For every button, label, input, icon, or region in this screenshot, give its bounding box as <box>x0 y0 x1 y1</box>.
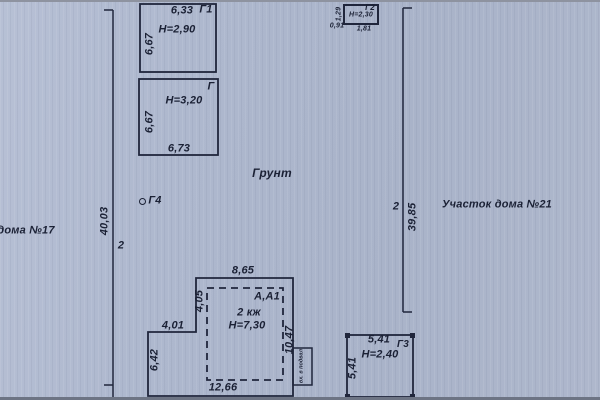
g-height-label: Н=3,20 <box>166 96 203 107</box>
g2-bottom-dimension: 1,81 <box>357 26 371 33</box>
g-bottom-dimension: 6,73 <box>168 144 190 155</box>
g2-bottom-left-dimension: 0,91 <box>330 23 344 30</box>
left-neighbor-plot-label: дома №17 <box>0 226 55 237</box>
g4-point-marker-icon <box>139 198 146 205</box>
g2-height-label: Н=2,30 <box>349 12 373 19</box>
right-boundary-ticks <box>403 8 412 312</box>
g3-height-label: Н=2,40 <box>362 350 399 361</box>
main-top-dimension: 8,65 <box>232 266 254 277</box>
g3-top-dimension: 5,41 <box>368 335 390 346</box>
g1-building-label: Г1 <box>199 5 212 16</box>
main-bottom-dimension: 12,66 <box>209 383 238 394</box>
main-floors-label: 2 кж <box>237 308 261 319</box>
main-building-label: А,А1 <box>254 292 280 303</box>
g4-structure-label: Г4 <box>148 196 161 207</box>
g2-left-dimension: 1,29 <box>336 7 343 21</box>
g1-top-dimension: 6,33 <box>171 6 193 17</box>
g-building-label: Г <box>208 82 215 93</box>
main-left-upper-dimension: 4,05 <box>195 290 206 312</box>
ground-type-label: Грунт <box>252 167 292 179</box>
g3-left-dimension: 5,41 <box>348 357 359 379</box>
right-boundary-length: 39,85 <box>408 203 419 232</box>
basement-entry-label: вх. в подвал <box>299 349 305 383</box>
g-left-dimension: 6,67 <box>145 111 156 133</box>
left-boundary-ticks <box>104 10 113 385</box>
g1-height-label: Н=2,90 <box>159 25 196 36</box>
right-boundary-point: 2 <box>393 202 399 213</box>
left-boundary-point: 2 <box>118 241 124 252</box>
right-neighbor-plot-label: Участок дома №21 <box>442 200 552 211</box>
main-ledge-dimension: 4,01 <box>162 321 184 332</box>
main-right-dimension: 10,47 <box>285 326 296 355</box>
main-height-label: Н=7,30 <box>229 321 266 332</box>
scan-edge-top <box>0 0 600 2</box>
g1-left-dimension: 6,67 <box>145 33 156 55</box>
g3-building-label: Г3 <box>397 340 409 350</box>
main-left-lower-dimension: 6,42 <box>150 349 161 371</box>
site-plan-scan: 6,33 Г1 Н=2,90 6,67 Г Н=3,20 6,67 6,73 1… <box>0 0 600 400</box>
left-boundary-length: 40,03 <box>100 207 111 236</box>
